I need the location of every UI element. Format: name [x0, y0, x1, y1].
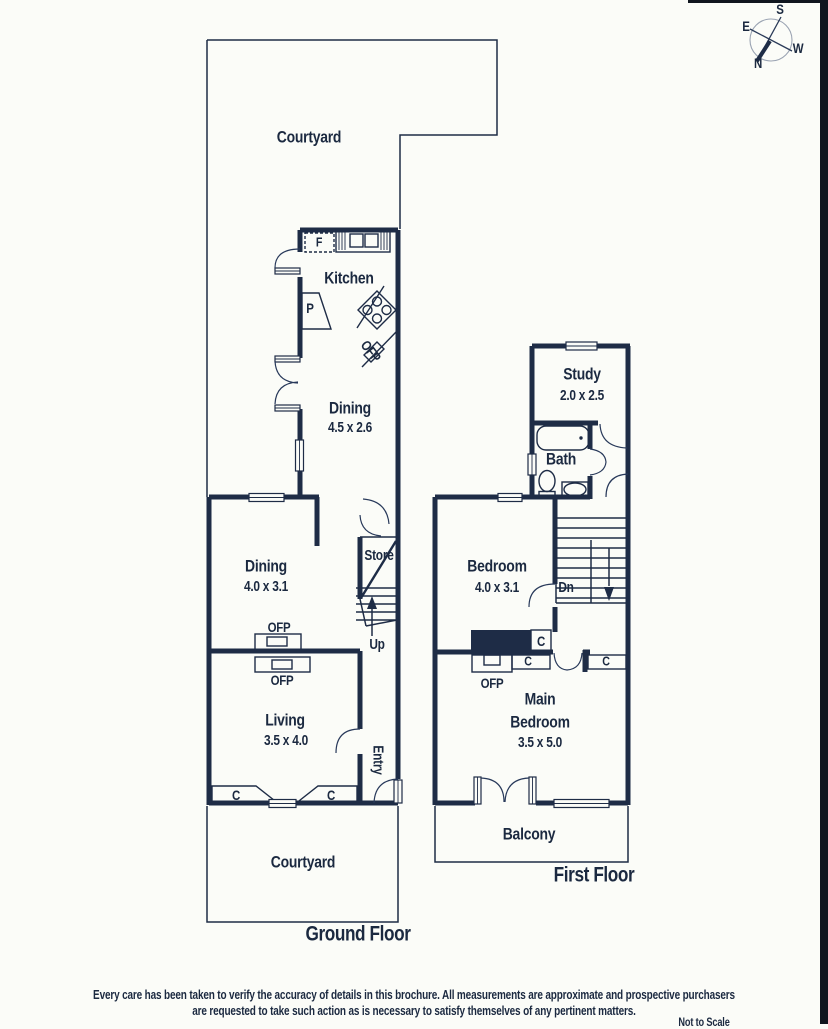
room-label-store: Store	[364, 549, 393, 564]
window-bath-left	[528, 454, 536, 475]
cupboard-left-label: C	[232, 788, 240, 802]
toilet-icon	[539, 471, 555, 498]
room-label-study: Study	[563, 366, 601, 383]
closet2-label: C	[524, 655, 531, 668]
stove-icon	[357, 286, 396, 329]
room-label-main-bedroom-2: Bedroom	[510, 714, 569, 731]
room-label-main-bedroom-1: Main	[525, 691, 556, 708]
door-leaf-balcony-left	[474, 777, 481, 804]
scan-edge-right	[820, 0, 828, 1024]
compass-south-label: S	[776, 2, 783, 16]
room-label-entry: Entry	[370, 745, 385, 774]
room-label-living: Living	[265, 712, 305, 729]
window-main-bedroom-bottom	[554, 800, 609, 808]
disclaimer-line-1: Every care has been taken to verify the …	[83, 988, 745, 1004]
room-label-kitchen: Kitchen	[324, 270, 373, 287]
courtyard-top-label: Courtyard	[277, 129, 341, 146]
scan-edge-top	[688, 0, 828, 3]
window-entry-sidelight	[394, 780, 402, 803]
fireplace-icon-dining	[255, 634, 301, 650]
closet3-label: C	[602, 655, 609, 668]
balcony-label: Balcony	[503, 826, 556, 843]
room-label-bath: Bath	[546, 451, 576, 468]
ofp-dining-label: OFP	[268, 620, 291, 634]
room-label-bedroom: Bedroom	[467, 558, 526, 575]
pantry-label: P	[306, 301, 313, 315]
room-dims-dining-upper: 4.5 x 2.6	[328, 421, 372, 436]
door-leaf-kitchen	[275, 268, 300, 274]
ofp-living-label: OFP	[271, 673, 294, 687]
door-leaf-french-bottom	[275, 405, 300, 411]
room-label-dining-lower: Dining	[245, 558, 287, 575]
door-leaf-french-top	[275, 356, 300, 362]
room-label-dining-upper: Dining	[329, 400, 371, 417]
stairs-down-label: Dn	[558, 581, 573, 596]
courtyard-bottom-label: Courtyard	[271, 854, 335, 871]
disclaimer-line-2: are requested to take such action as is …	[83, 1004, 745, 1020]
bathtub-icon	[537, 426, 589, 450]
window-dining-lower-top	[249, 494, 284, 502]
floor-plan-page: { "colors": { "ink": "#1e2c46", "text": …	[0, 0, 828, 1024]
cupboard-right-label: C	[327, 788, 335, 802]
window-bedroom-top	[498, 494, 522, 502]
room-dims-study: 2.0 x 2.5	[560, 389, 604, 404]
floor-plan-linework	[0, 0, 828, 1024]
stairs-up-label: Up	[369, 638, 384, 653]
ofp-main-bedroom-label: OFP	[481, 676, 504, 690]
fireplace-icon-living	[255, 657, 310, 672]
closet1-label: C	[537, 634, 545, 648]
first-floor-title: First Floor	[554, 865, 635, 886]
room-dims-bedroom: 4.0 x 3.1	[475, 581, 519, 596]
door-arcs	[275, 249, 628, 803]
window-living-bottom	[269, 800, 296, 808]
compass-north-label: N	[754, 56, 762, 70]
room-dims-main-bedroom: 3.5 x 5.0	[518, 736, 562, 751]
fireplace-icon-main-bedroom	[472, 655, 512, 672]
compass-west-label: W	[793, 41, 804, 55]
room-dims-dining-lower: 4.0 x 3.1	[244, 580, 288, 595]
ground-floor-title: Ground Floor	[305, 924, 410, 945]
sink-bench-icon	[336, 230, 390, 252]
window-dining-upper-left	[296, 440, 304, 471]
room-dims-living: 3.5 x 4.0	[264, 734, 308, 749]
window-study-top	[566, 342, 597, 350]
door-leaf-balcony-right	[529, 777, 536, 804]
fridge-label: F	[316, 236, 322, 249]
compass-east-label: E	[742, 19, 749, 33]
cupboard-living-left	[212, 786, 277, 803]
scale-note: Not to Scale	[678, 1017, 729, 1029]
